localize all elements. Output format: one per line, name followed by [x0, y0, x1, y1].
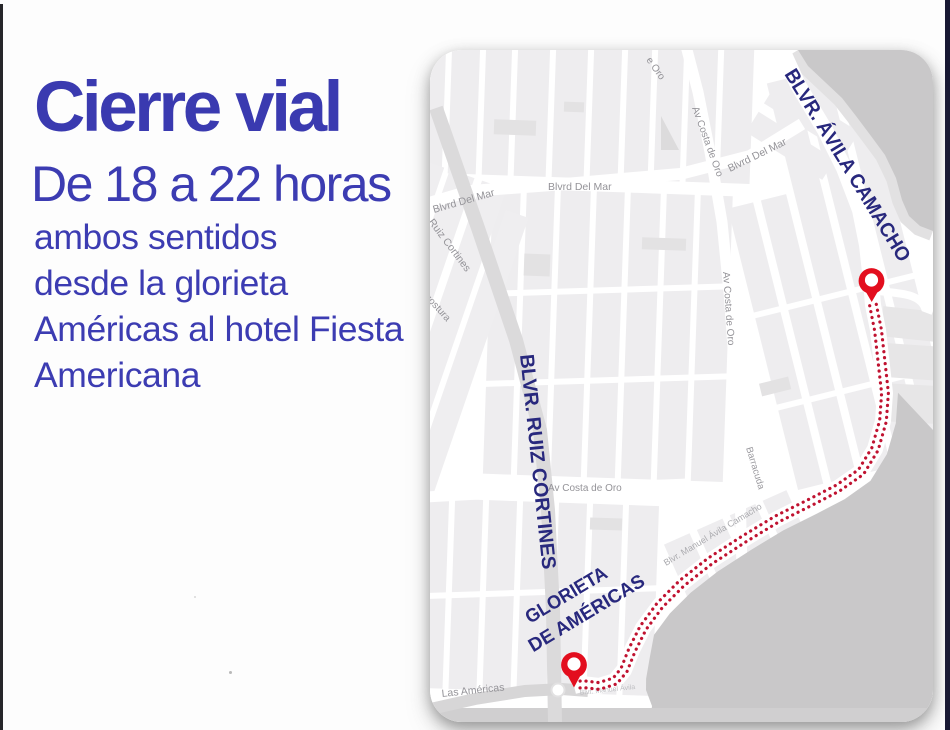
svg-text:Blvrd Del Mar: Blvrd Del Mar [548, 181, 612, 193]
svg-text:Av Costa de Oro: Av Costa de Oro [548, 483, 622, 494]
